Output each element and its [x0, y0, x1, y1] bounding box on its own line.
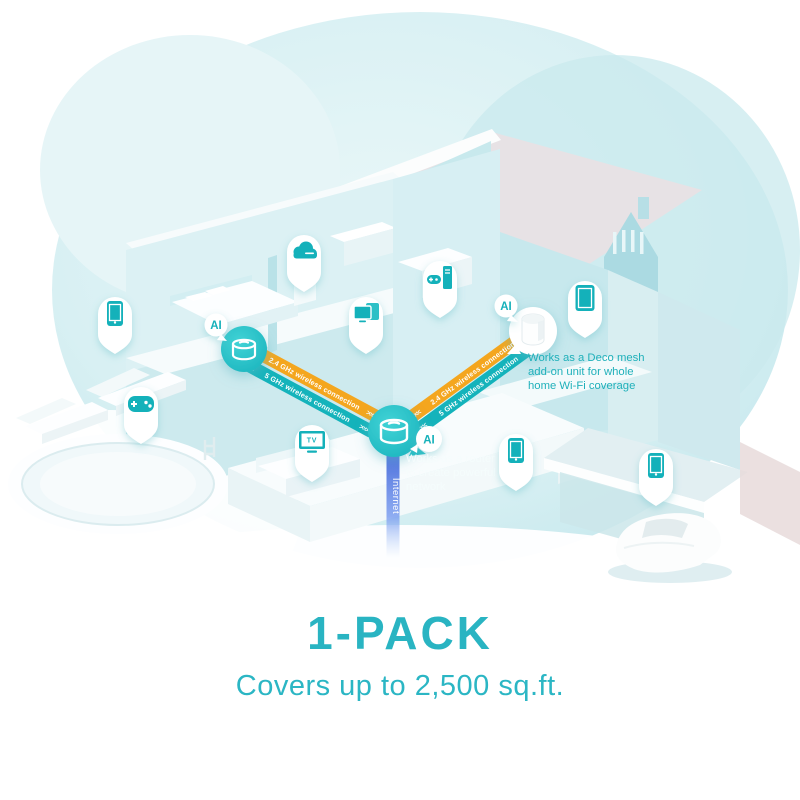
coverage-subtitle: Covers up to 2,500 sq.ft. [0, 670, 800, 703]
device-pin-game-console [423, 261, 457, 318]
deco-router-left [221, 326, 267, 372]
tv-label: TV [307, 438, 318, 445]
pool [8, 434, 228, 534]
device-pin-game-controller [124, 387, 158, 444]
white-deco-unit-icon [522, 314, 544, 345]
smartphone-icon [107, 301, 123, 326]
device-pin-smartphone-patio [98, 297, 132, 354]
internet-label: Internet [390, 478, 401, 514]
device-pin-smartphone-hall [499, 434, 533, 491]
dual-screens-icon [354, 303, 379, 322]
caption-block: 1-PACK Covers up to 2,500 sq.ft. [0, 606, 800, 703]
svg-text:network: network [406, 481, 446, 493]
device-pin-tv: TV [295, 425, 329, 482]
game-controller-icon [128, 396, 154, 412]
device-pin-smartphone-garage [639, 449, 673, 506]
svg-text:add-on unit for whole: add-on unit for whole [528, 366, 634, 378]
side-wall [740, 442, 800, 545]
ai-badge-label: AI [210, 320, 222, 332]
tablet-icon [576, 285, 595, 311]
addon-unit-note: Works as a Deco mesh add-on unit for who… [528, 352, 645, 392]
product-marketing-image: Internet <<< 2.4 GHz wireless connection… [0, 0, 800, 800]
device-pin-tablet [568, 281, 602, 338]
smartphone-icon [508, 438, 524, 463]
pack-title: 1-PACK [0, 606, 800, 660]
svg-text:Works as a router: Works as a router [406, 453, 495, 465]
device-pin-dual-screens [349, 297, 383, 354]
ai-badge-label: AI [500, 301, 512, 313]
device-pin-cloud [287, 235, 321, 292]
internet-band: Internet [387, 440, 402, 558]
svg-text:to create powerful: to create powerful [406, 467, 496, 479]
ai-badge-label: AI [423, 434, 435, 446]
svg-text:Works as a Deco mesh: Works as a Deco mesh [528, 352, 645, 364]
smartphone-icon [648, 453, 664, 478]
svg-text:home Wi-Fi coverage: home Wi-Fi coverage [528, 380, 635, 392]
house-illustration: Internet <<< 2.4 GHz wireless connection… [0, 0, 800, 600]
